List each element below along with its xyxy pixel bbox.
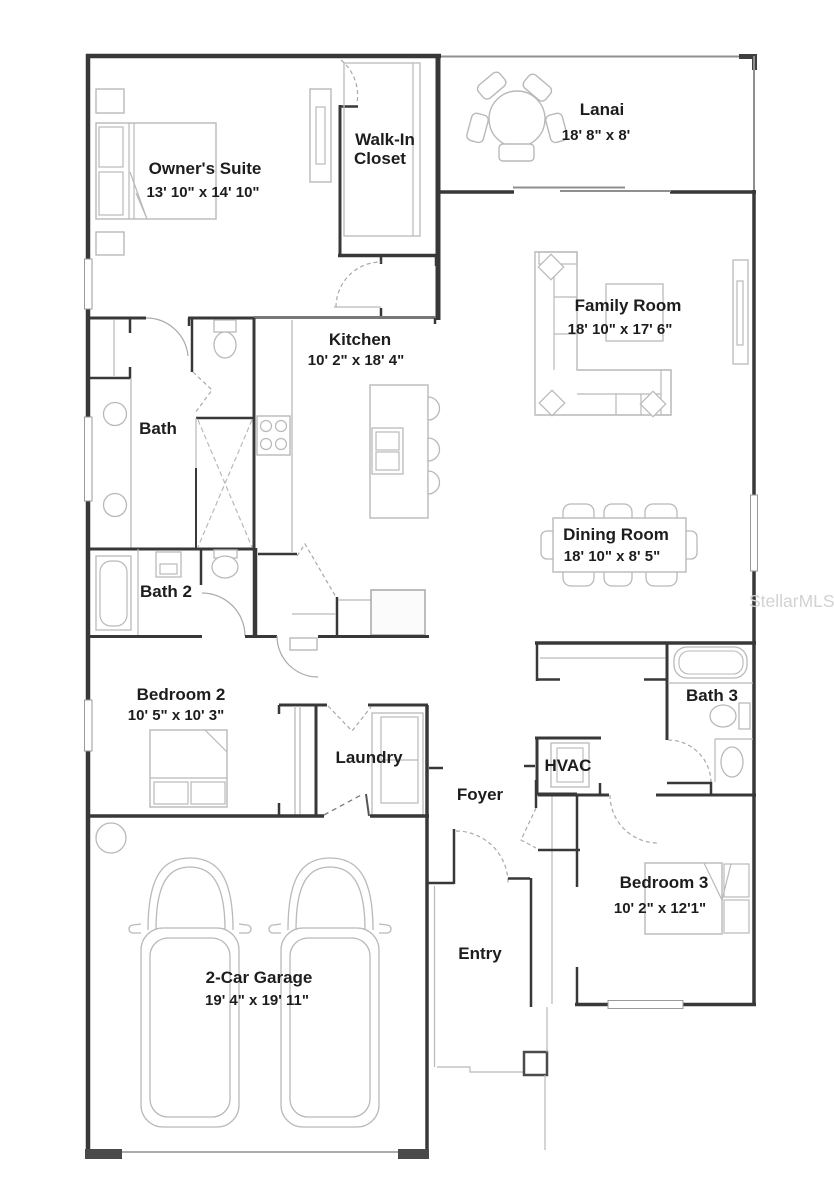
svg-text:Owner's Suite: Owner's Suite: [149, 159, 262, 178]
svg-text:10' 2" x 18' 4": 10' 2" x 18' 4": [308, 352, 404, 369]
svg-text:18' 10" x 8' 5": 18' 10" x 8' 5": [564, 548, 660, 565]
svg-text:Bedroom 2: Bedroom 2: [137, 685, 226, 704]
svg-text:2-Car Garage: 2-Car Garage: [206, 968, 313, 987]
svg-text:Foyer: Foyer: [457, 785, 504, 804]
svg-text:Walk-In: Walk-In: [355, 130, 415, 149]
svg-text:Bath 3: Bath 3: [686, 686, 738, 705]
svg-text:HVAC: HVAC: [545, 756, 592, 775]
svg-text:Bedroom 3: Bedroom 3: [620, 873, 709, 892]
svg-text:Bath: Bath: [139, 419, 177, 438]
svg-text:10' 2" x 12'1": 10' 2" x 12'1": [614, 900, 706, 917]
svg-text:18' 8" x 8': 18' 8" x 8': [562, 127, 630, 144]
svg-text:18' 10" x 17' 6": 18' 10" x 17' 6": [568, 321, 673, 338]
svg-text:10' 5" x 10' 3": 10' 5" x 10' 3": [128, 707, 224, 724]
svg-text:Kitchen: Kitchen: [329, 330, 391, 349]
svg-text:Laundry: Laundry: [335, 748, 403, 767]
svg-text:19' 4" x 19' 11": 19' 4" x 19' 11": [205, 992, 309, 1009]
svg-text:13' 10" x 14' 10": 13' 10" x 14' 10": [146, 184, 259, 201]
svg-text:Lanai: Lanai: [580, 100, 624, 119]
svg-text:Family Room: Family Room: [575, 296, 682, 315]
svg-text:Dining Room: Dining Room: [563, 525, 669, 544]
svg-text:Entry: Entry: [458, 944, 502, 963]
svg-text:Closet: Closet: [354, 149, 406, 168]
svg-text:Bath 2: Bath 2: [140, 582, 192, 601]
svg-text:StellarMLS: StellarMLS: [749, 591, 834, 611]
